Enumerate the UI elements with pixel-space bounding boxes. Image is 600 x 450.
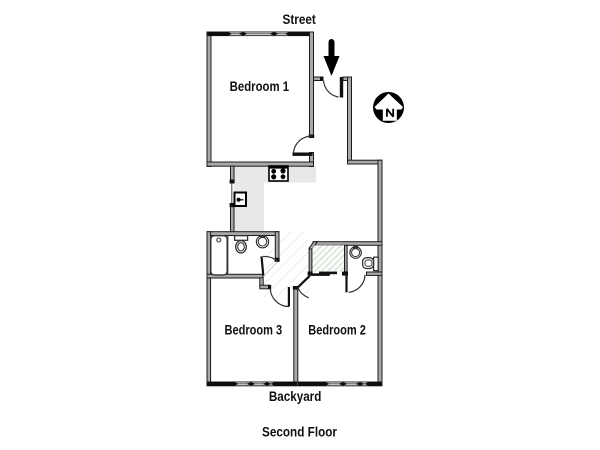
svg-text:Second Floor: Second Floor bbox=[262, 424, 338, 439]
svg-text:Street: Street bbox=[283, 12, 317, 27]
svg-text:Bedroom 3: Bedroom 3 bbox=[225, 322, 283, 337]
svg-text:Backyard: Backyard bbox=[269, 389, 322, 404]
svg-text:Bedroom 1: Bedroom 1 bbox=[230, 79, 290, 94]
svg-text:Bedroom 2: Bedroom 2 bbox=[308, 322, 366, 337]
